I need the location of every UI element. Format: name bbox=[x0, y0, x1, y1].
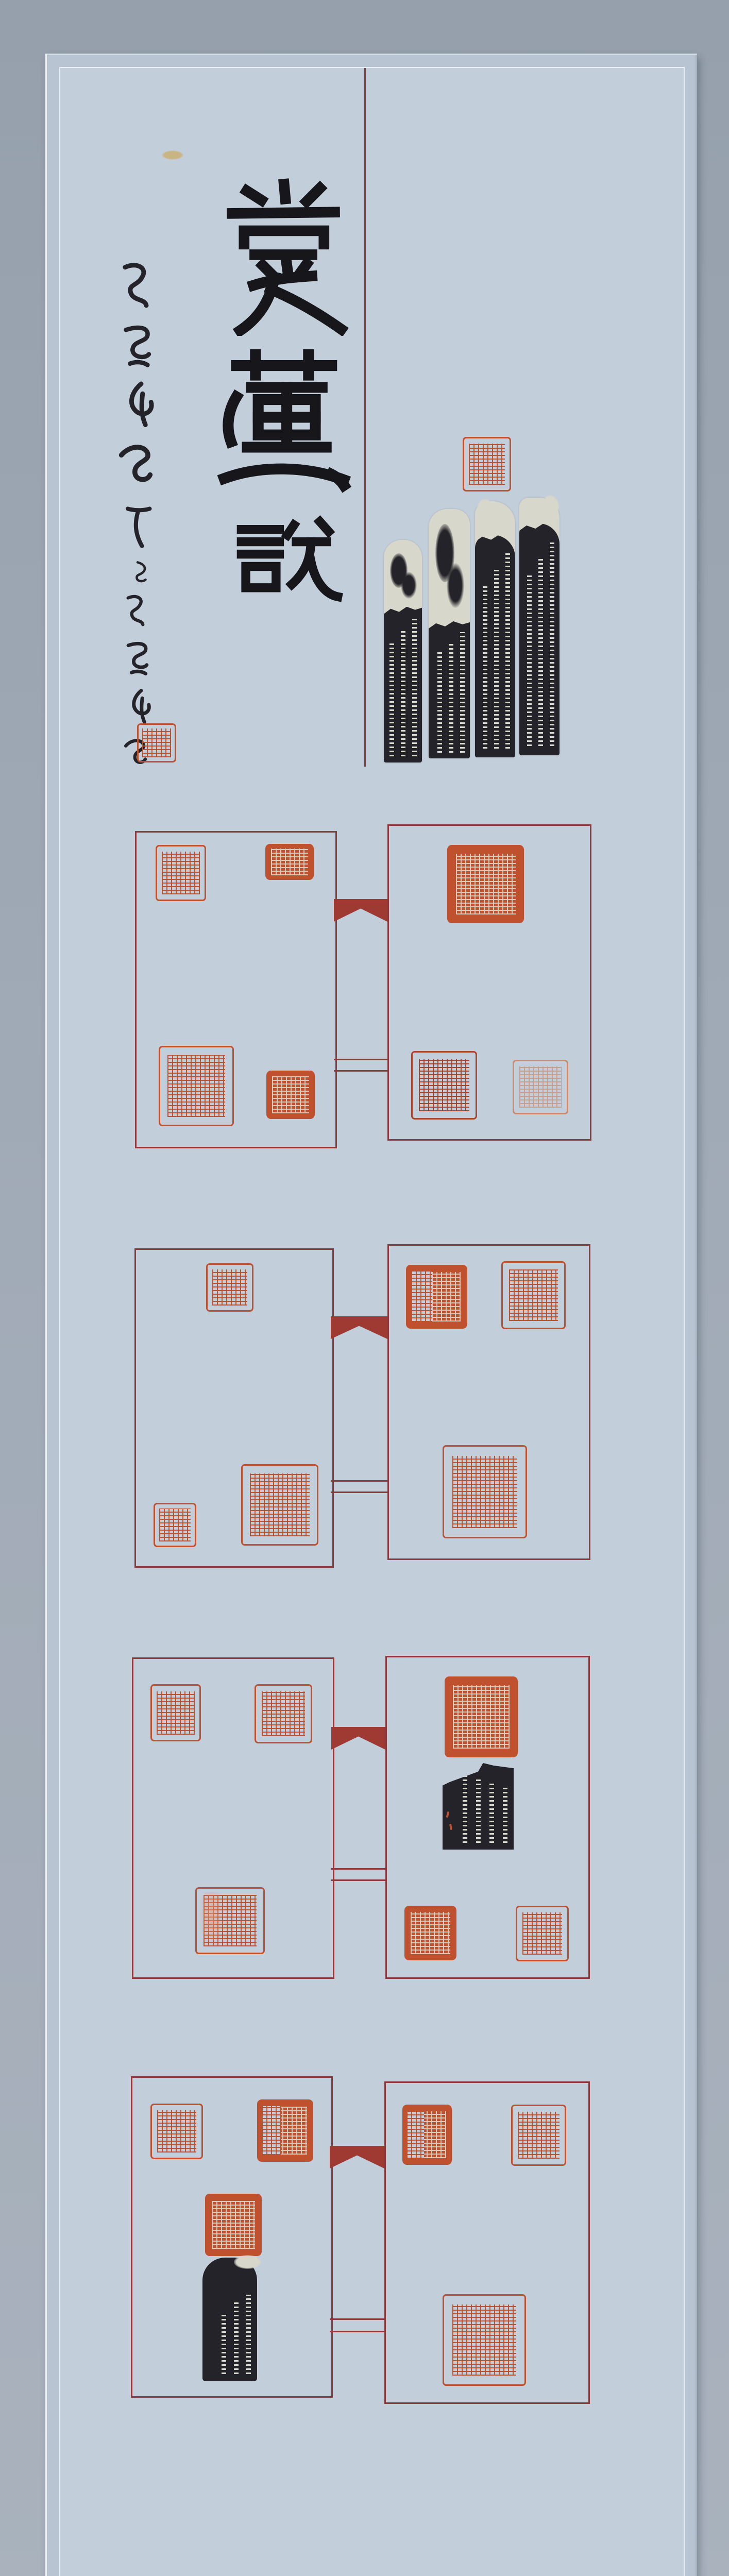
seal-row3-left-2-pattern bbox=[262, 1691, 306, 1736]
seal-row2-left-2: 深圳 bbox=[154, 1503, 196, 1547]
rubbing-text-column bbox=[437, 651, 442, 753]
seal-row2-right-2: 自李唐來 bbox=[501, 1261, 566, 1329]
inscription-character bbox=[111, 438, 159, 493]
connector-rule-row3 bbox=[331, 1879, 385, 1881]
rubbing-strip-ink bbox=[519, 523, 560, 755]
rubbing-text-column bbox=[246, 2295, 251, 2374]
seal-row2-right-1: 花之隱逸者也 bbox=[406, 1265, 467, 1329]
seal-row4-right-3: 可遠觀而不可褻玩焉 bbox=[443, 2294, 526, 2386]
seal-row4-left-1-pattern bbox=[157, 2110, 197, 2153]
seal-row1-left-3: 花之富貴者也 bbox=[159, 1046, 234, 1126]
rubbing-text-column bbox=[505, 552, 510, 749]
seal-row1-right-2-pattern bbox=[419, 1059, 469, 1112]
rubbing-stone-chip bbox=[477, 499, 494, 522]
seal-row1-right-2: 晉陶淵明獨愛菊 bbox=[411, 1051, 477, 1120]
seal-row1-right-1: 水陸草木之花 bbox=[447, 845, 524, 923]
rubbing-text-column bbox=[234, 2300, 239, 2374]
rubbing-text-column bbox=[412, 619, 417, 756]
seal-row3-left-1-pattern bbox=[157, 1691, 195, 1735]
rubbing-text-column bbox=[550, 542, 554, 746]
seal-row4-right-2-pattern bbox=[518, 2112, 560, 2158]
rubbing-text-column bbox=[503, 1786, 507, 1843]
title-char-lian bbox=[208, 345, 359, 515]
seal-row1-left-4-pattern bbox=[272, 1076, 309, 1113]
title-char-ai bbox=[207, 176, 360, 336]
rubbing-text-column bbox=[483, 584, 487, 749]
rubbing-strip-ink bbox=[475, 535, 515, 757]
connector-rule-row2 bbox=[331, 1480, 387, 1482]
rubbing-strip-2: 予謂菊花之隱逸者也牡丹花之富貴者也蓮花之君子者也 bbox=[429, 509, 470, 758]
rubbing-text-column bbox=[222, 2314, 226, 2374]
rubbing-text-column bbox=[449, 642, 453, 753]
rubbing-strip-3: 之出淤泥而不染濯清漣而不妖中通外直不蔓不枝香遠益清亭亭淨植可遠觀而不可褻玩焉 bbox=[475, 501, 515, 757]
red-signature-mark bbox=[446, 1811, 450, 1818]
rubbing-text-column bbox=[489, 1782, 494, 1843]
seal-row1-right-3-pattern bbox=[519, 1066, 562, 1108]
seal-row4-left-2-open-face bbox=[262, 2106, 281, 2156]
rubbing-text-column bbox=[538, 558, 543, 747]
seal-row1-left-2-pattern bbox=[271, 849, 308, 876]
rubbing-strip-ink bbox=[384, 607, 422, 762]
rubbing-stone-mottle bbox=[447, 563, 464, 608]
inscription-seal-pattern bbox=[142, 728, 171, 757]
seal-row3-left-3: 蓮之愛 bbox=[195, 1887, 265, 1954]
seal-row3-left-2: 菊之愛 bbox=[255, 1684, 312, 1743]
seal-row3-left-3-smudge bbox=[199, 1892, 224, 1948]
connector-rule-row1 bbox=[334, 1070, 387, 1072]
inscription-character bbox=[124, 686, 158, 725]
seal-row1-left-4: 牡丹 bbox=[266, 1071, 315, 1119]
title-divider-line bbox=[364, 68, 366, 767]
seal-row2-left-2-pattern bbox=[159, 1509, 191, 1541]
seal-row1-right-1-pattern bbox=[456, 854, 516, 914]
rubbing-stone-chip bbox=[234, 2255, 261, 2268]
seal-row1-left-3-pattern bbox=[167, 1055, 225, 1117]
connector-rule-row4 bbox=[330, 2318, 384, 2320]
seal-row3-right-1-pattern bbox=[453, 1685, 510, 1748]
seal-row3-right-2: 不蔓不枝 bbox=[404, 1906, 456, 1960]
rubbing-text-column bbox=[389, 641, 394, 756]
rubbing-block-row4-left: 宜乎眾矣 攻玉山房度之 bbox=[202, 2258, 257, 2381]
rubbing-strip-4: 水陸草木之花可愛者甚蕃晉陶淵明獨愛菊自李唐來世人甚愛牡丹予獨愛蓮 bbox=[519, 498, 560, 755]
title-char-shuo bbox=[205, 513, 362, 608]
seal-row4-right-1-open-face bbox=[406, 2111, 423, 2159]
inscription-character bbox=[117, 320, 159, 369]
seal-row3-right-2-pattern bbox=[411, 1912, 451, 1954]
rubbing-text-column bbox=[476, 1778, 481, 1842]
header-seal: 愛蓮說 bbox=[463, 437, 511, 492]
rubbing-stone-chip bbox=[541, 495, 559, 518]
seal-row3-right-1: 濯清漣而不妖 bbox=[445, 1676, 518, 1757]
seal-row2-right-3: 攻玉山房主人 bbox=[443, 1445, 527, 1538]
seal-row1-right-3: 世人甚愛牡丹 bbox=[513, 1060, 568, 1114]
seal-row2-right-1-open-face bbox=[411, 1272, 432, 1322]
rubbing-text-column bbox=[527, 574, 532, 746]
photo-of-seal-art-scroll: 愛蓮說 Ai Lian Shuo - On the Love of the Lo… bbox=[0, 0, 729, 2576]
rubbing-text-column bbox=[494, 568, 499, 748]
seal-row1-left-2: 予獨愛蓮 bbox=[265, 844, 314, 880]
rubbing-stone-mottle bbox=[401, 572, 417, 599]
inscription-character bbox=[118, 502, 158, 549]
inscription-character bbox=[121, 638, 155, 677]
seal-row4-left-3-pattern bbox=[212, 2201, 256, 2249]
seal-row4-left-2: 同予者何人 bbox=[257, 2099, 313, 2162]
rubbing-text-column bbox=[460, 632, 465, 753]
inscription-character bbox=[113, 260, 157, 311]
red-signature-mark bbox=[449, 1823, 452, 1830]
rubbing-text-column bbox=[463, 1775, 467, 1843]
seal-row4-right-1: 亭亭淨植 bbox=[402, 2105, 452, 2165]
seal-row1-left-1-pattern bbox=[162, 852, 200, 894]
rubbing-strip-1: 陶後鮮有聞蓮之愛同予者何人牡丹之愛宜乎眾矣 北宋周敦頤愛蓮說 攻玉山房 bbox=[384, 540, 422, 762]
seal-row1-left-1: 周敦頤愛蓮說 bbox=[156, 845, 206, 901]
connector-rule-row4 bbox=[330, 2331, 384, 2332]
seal-row2-right-3-pattern bbox=[452, 1456, 517, 1528]
seal-row4-right-3-pattern bbox=[452, 2304, 517, 2376]
seal-row2-left-1: 蓮 bbox=[206, 1263, 253, 1312]
seal-row4-right-2: 香遠益清 bbox=[511, 2105, 566, 2166]
seal-row2-left-3-pattern bbox=[250, 1473, 309, 1536]
rubbing-text-column bbox=[401, 630, 405, 756]
seal-row2-right-2-pattern bbox=[509, 1269, 558, 1321]
inscription-character bbox=[130, 558, 152, 584]
seal-row3-right-3: 中通外直 bbox=[516, 1906, 569, 1961]
connector-rule-row1 bbox=[334, 1059, 387, 1060]
inscription-character bbox=[119, 378, 163, 429]
paper-stain bbox=[162, 150, 183, 160]
inscription-seal: 攻玉山房 bbox=[137, 723, 176, 762]
seal-row4-left-1: 陶後鮮有聞 bbox=[150, 2104, 203, 2159]
connector-rule-row3 bbox=[331, 1868, 385, 1870]
seal-row2-left-3: 出淤泥而不染 bbox=[241, 1464, 318, 1546]
seal-row2-left-1-pattern bbox=[212, 1269, 248, 1306]
seal-row3-right-3-pattern bbox=[522, 1912, 563, 1955]
header-seal-pattern bbox=[469, 444, 505, 485]
inscription-character bbox=[120, 593, 150, 629]
connector-rule-row2 bbox=[331, 1492, 387, 1493]
seal-row4-left-3: 宜乎眾矣 bbox=[205, 2194, 262, 2256]
seal-row3-left-1: 中通外直 bbox=[150, 1684, 201, 1741]
rubbing-strip-ink bbox=[429, 621, 470, 758]
